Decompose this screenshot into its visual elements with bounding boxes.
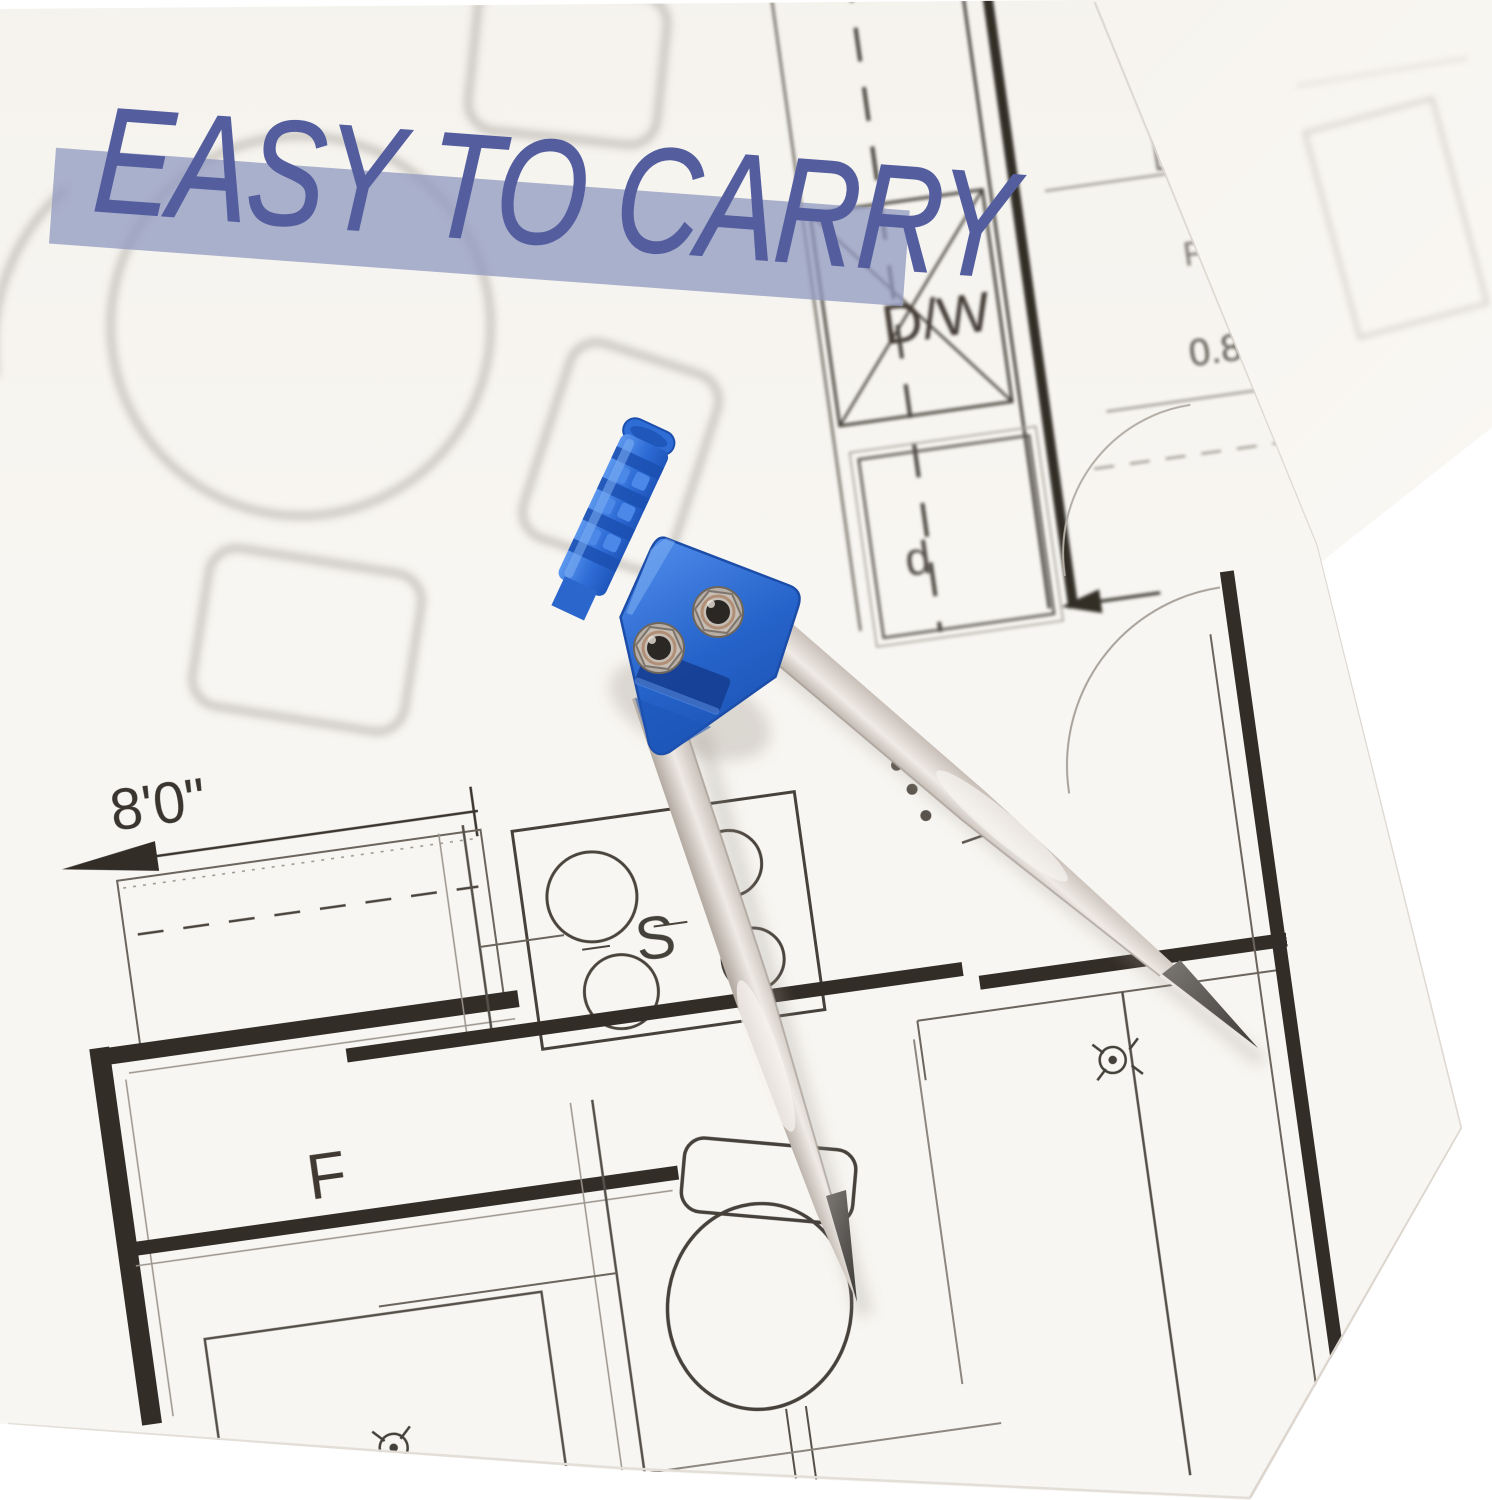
hinge-screw-upper <box>693 587 743 637</box>
right-needle-tip <box>1162 960 1258 1048</box>
hinge-screw-lower <box>634 623 684 673</box>
right-leg-highlight <box>928 761 1076 892</box>
product-photo: D/W d F 0.8 <box>0 0 1492 1500</box>
compass-right-leg <box>728 592 1258 1048</box>
screw-highlight <box>648 636 656 644</box>
screw-highlight <box>707 600 715 608</box>
compass-left-leg <box>632 685 857 1302</box>
